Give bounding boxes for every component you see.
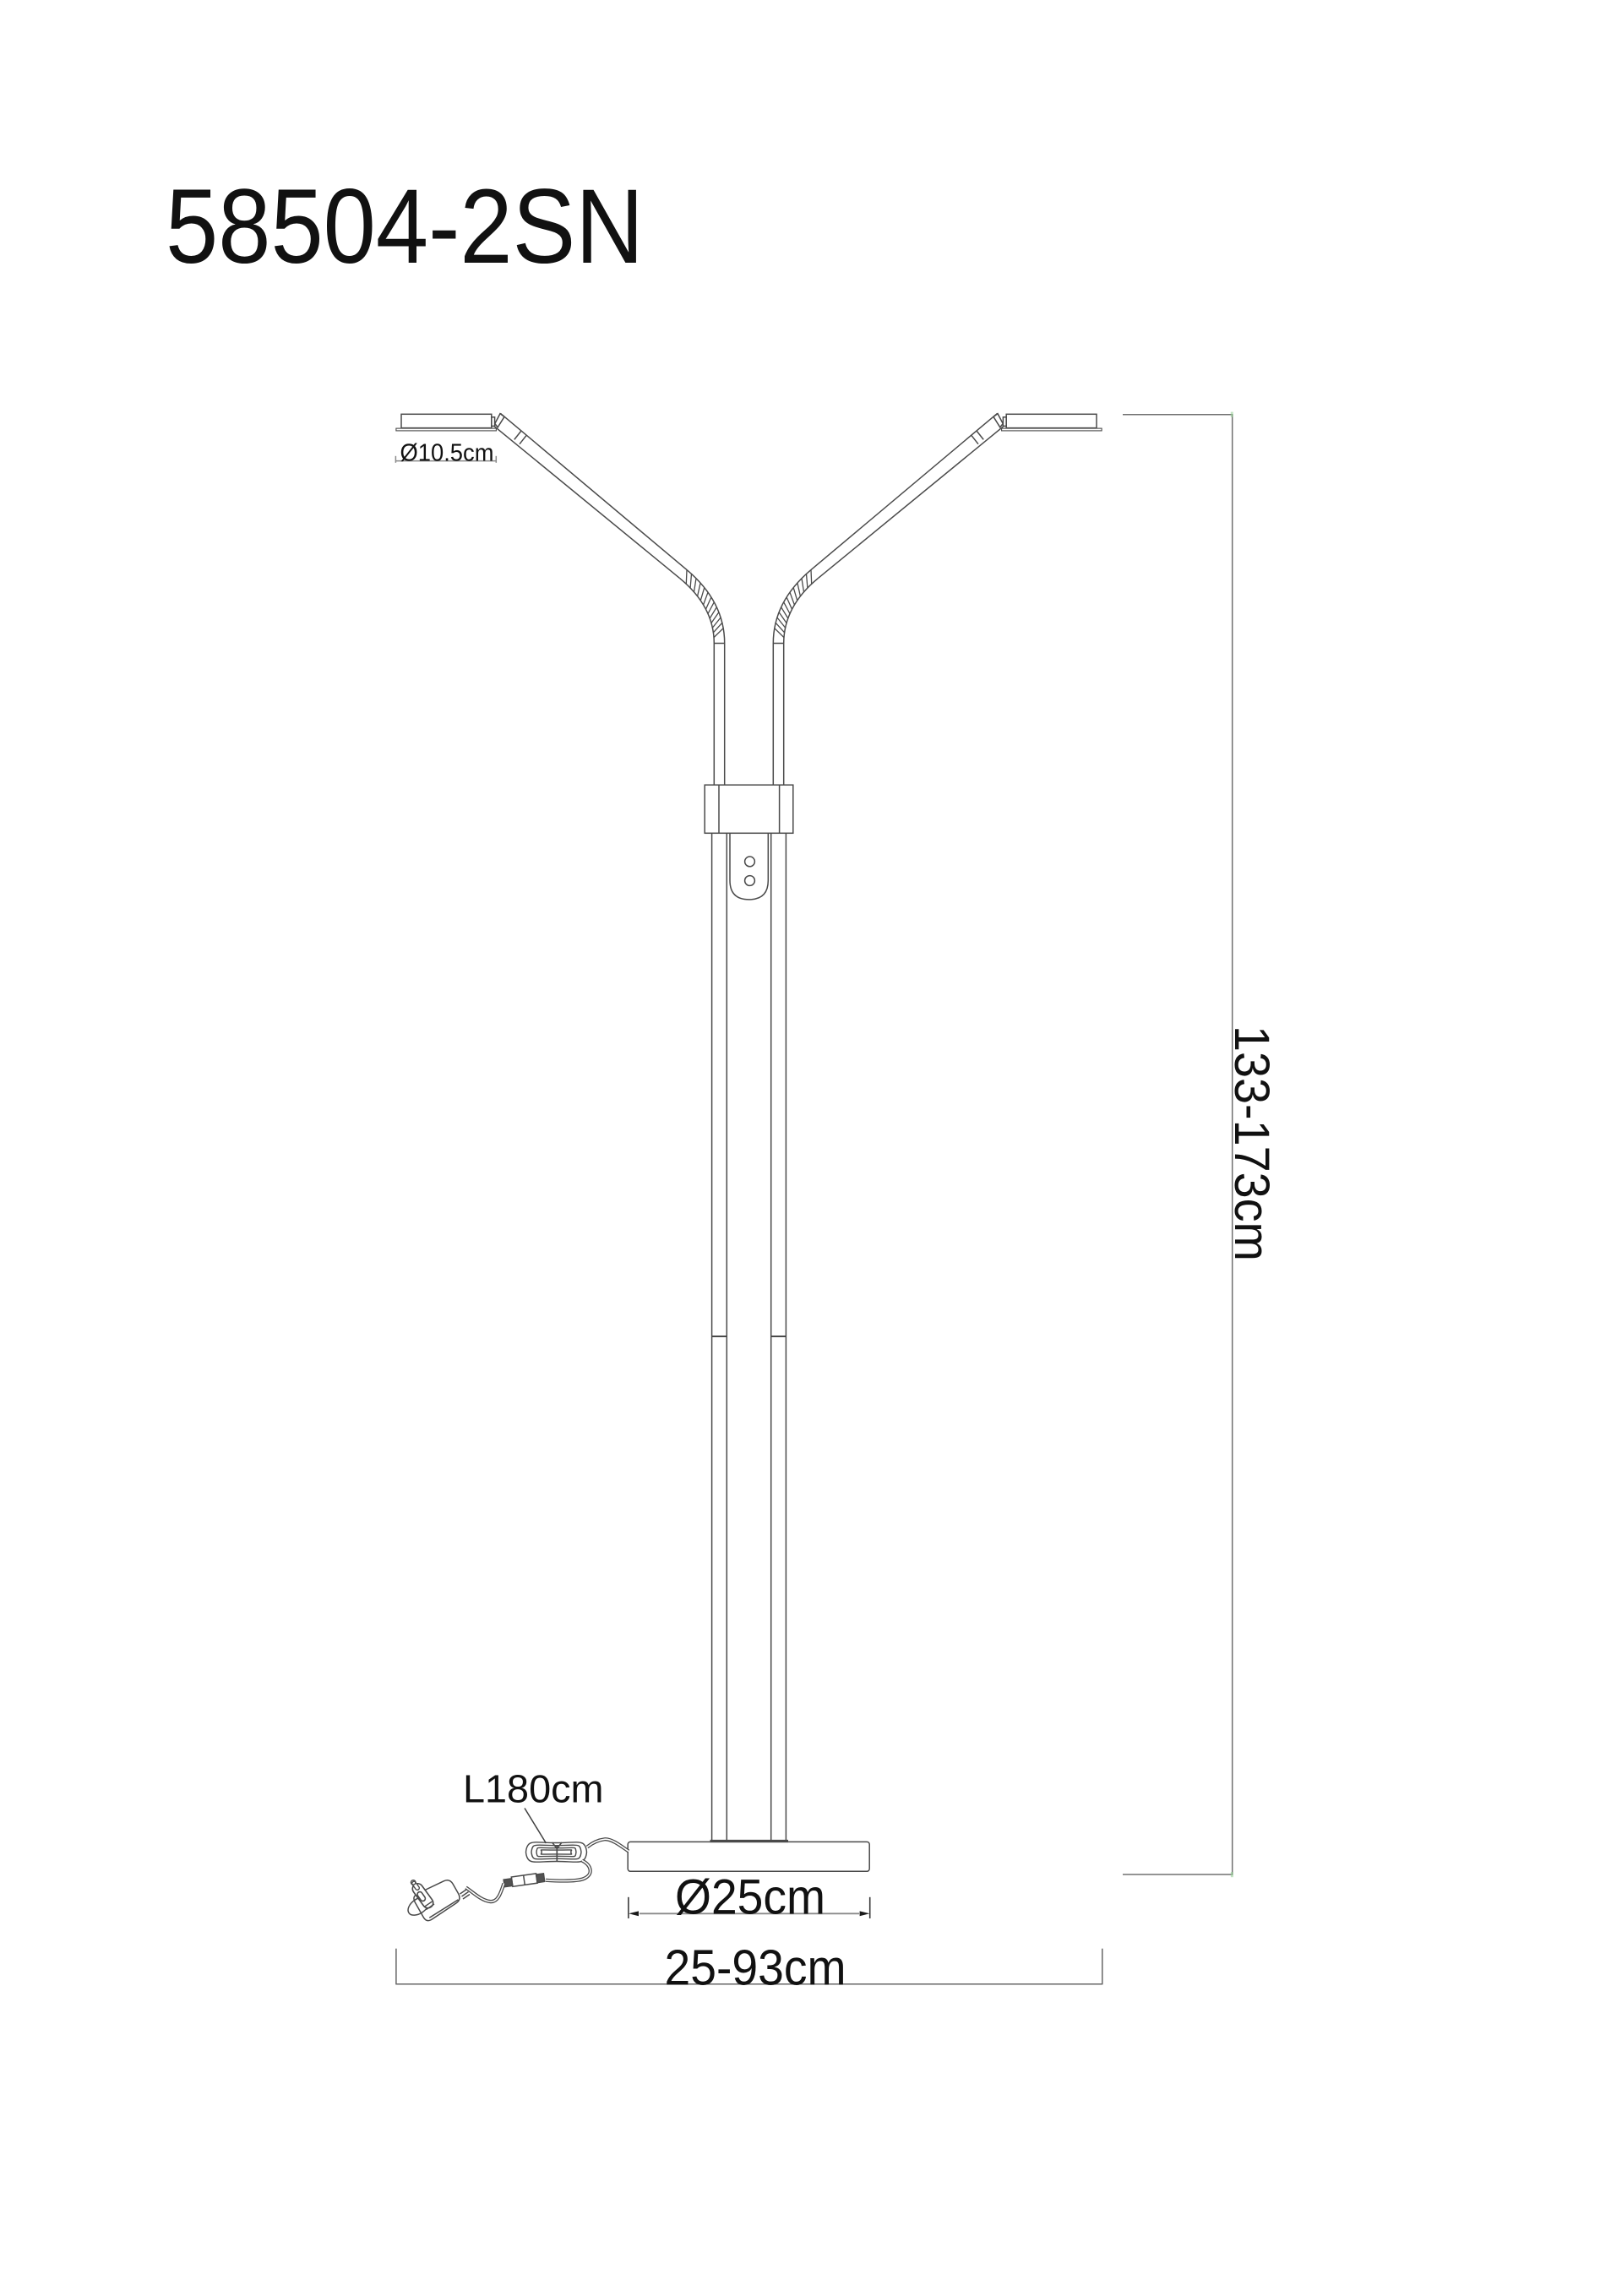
- svg-text:58504-2SN: 58504-2SN: [166, 168, 644, 286]
- svg-text:Ø10.5cm: Ø10.5cm: [400, 439, 494, 466]
- svg-text:25-93cm: 25-93cm: [665, 1939, 846, 1995]
- svg-text:133-173cm: 133-173cm: [1224, 1026, 1279, 1261]
- svg-text:L180cm: L180cm: [463, 1767, 604, 1811]
- svg-text:Ø25cm: Ø25cm: [675, 1869, 825, 1924]
